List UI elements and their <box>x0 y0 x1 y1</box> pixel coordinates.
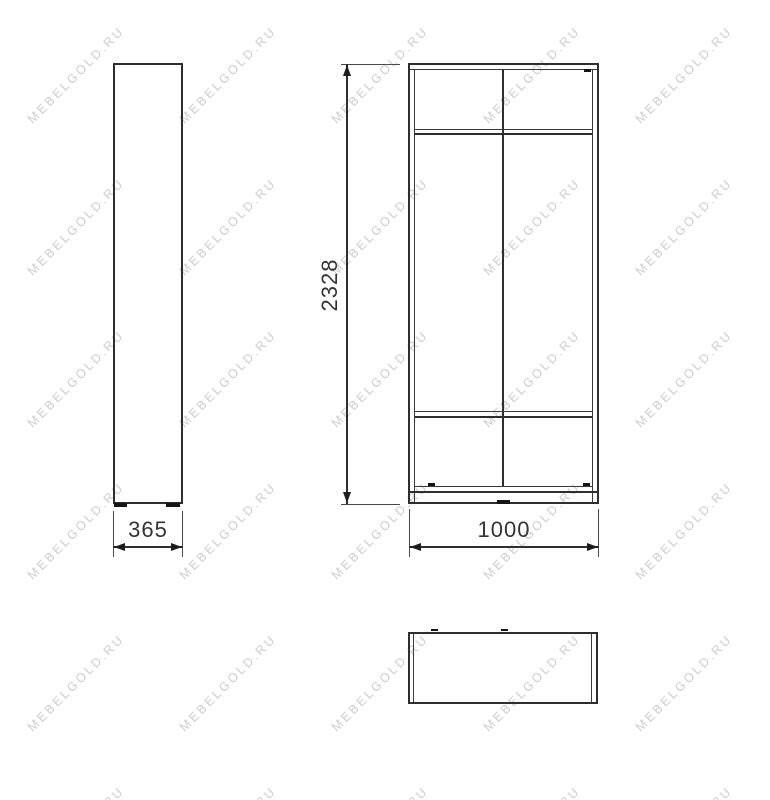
front-upper-shelf-line-bottom <box>415 133 592 135</box>
arrowhead-right-icon <box>587 543 598 551</box>
front-hinge-mark-bottom-left <box>428 483 435 486</box>
front-lower-shelf-line-bottom <box>415 416 592 418</box>
top-view-outline <box>408 632 598 704</box>
top-view-hinge-mark-left <box>431 629 438 631</box>
watermark-text: MEBELGOLD.RU <box>633 24 735 126</box>
arrowhead-left-icon <box>410 543 421 551</box>
watermark-text: MEBELGOLD.RU <box>481 784 583 800</box>
front-center-foot-mark <box>497 500 510 504</box>
front-lower-shelf-line-top <box>415 411 592 412</box>
front-door-bottom-line <box>415 486 592 487</box>
dimension-line <box>346 64 348 504</box>
watermark-text: MEBELGOLD.RU <box>177 480 279 582</box>
front-hinge-mark-top-right <box>584 69 591 72</box>
watermark-text: MEBELGOLD.RU <box>25 632 127 734</box>
front-top-inner-line <box>410 69 597 70</box>
dimension-label-side-width: 365 <box>113 519 183 541</box>
watermark-text: MEBELGOLD.RU <box>25 328 127 430</box>
extension-line <box>341 504 400 505</box>
front-right-panel-line <box>592 69 593 502</box>
watermark-text: MEBELGOLD.RU <box>25 480 127 582</box>
watermark-text: MEBELGOLD.RU <box>177 328 279 430</box>
watermark-text: MEBELGOLD.RU <box>633 328 735 430</box>
watermark-text: MEBELGOLD.RU <box>25 784 127 800</box>
side-view-foot-right <box>166 503 180 507</box>
watermark-text: MEBELGOLD.RU <box>25 24 127 126</box>
watermark-text: MEBELGOLD.RU <box>177 784 279 800</box>
watermark-text: MEBELGOLD.RU <box>177 176 279 278</box>
dimension-line <box>409 546 599 548</box>
side-view-outline <box>113 63 183 504</box>
watermark-text: MEBELGOLD.RU <box>633 784 735 800</box>
arrowhead-left-icon <box>114 543 125 551</box>
dimension-label-front-width: 1000 <box>409 519 599 541</box>
technical-drawing-canvas: MEBELGOLD.RUMEBELGOLD.RUMEBELGOLD.RUMEBE… <box>0 0 770 800</box>
side-view-foot-left <box>114 503 127 507</box>
front-plinth-top-line <box>410 491 597 493</box>
top-view-right-panel-line <box>591 633 592 702</box>
top-view-hinge-mark-right <box>501 629 508 631</box>
watermark-text: MEBELGOLD.RU <box>633 632 735 734</box>
top-view-left-panel-line <box>413 633 414 702</box>
watermark-text: MEBELGOLD.RU <box>177 632 279 734</box>
arrowhead-up-icon <box>343 65 351 76</box>
watermark-text: MEBELGOLD.RU <box>329 784 431 800</box>
dimension-label-front-height: 2328 <box>319 259 341 312</box>
watermark-text: MEBELGOLD.RU <box>633 480 735 582</box>
watermark-text: MEBELGOLD.RU <box>25 176 127 278</box>
arrowhead-down-icon <box>343 492 351 503</box>
front-upper-shelf-line-top <box>415 129 592 130</box>
front-hinge-mark-bottom-right <box>583 483 590 486</box>
watermark-text: MEBELGOLD.RU <box>177 24 279 126</box>
watermark-text: MEBELGOLD.RU <box>633 176 735 278</box>
arrowhead-right-icon <box>171 543 182 551</box>
